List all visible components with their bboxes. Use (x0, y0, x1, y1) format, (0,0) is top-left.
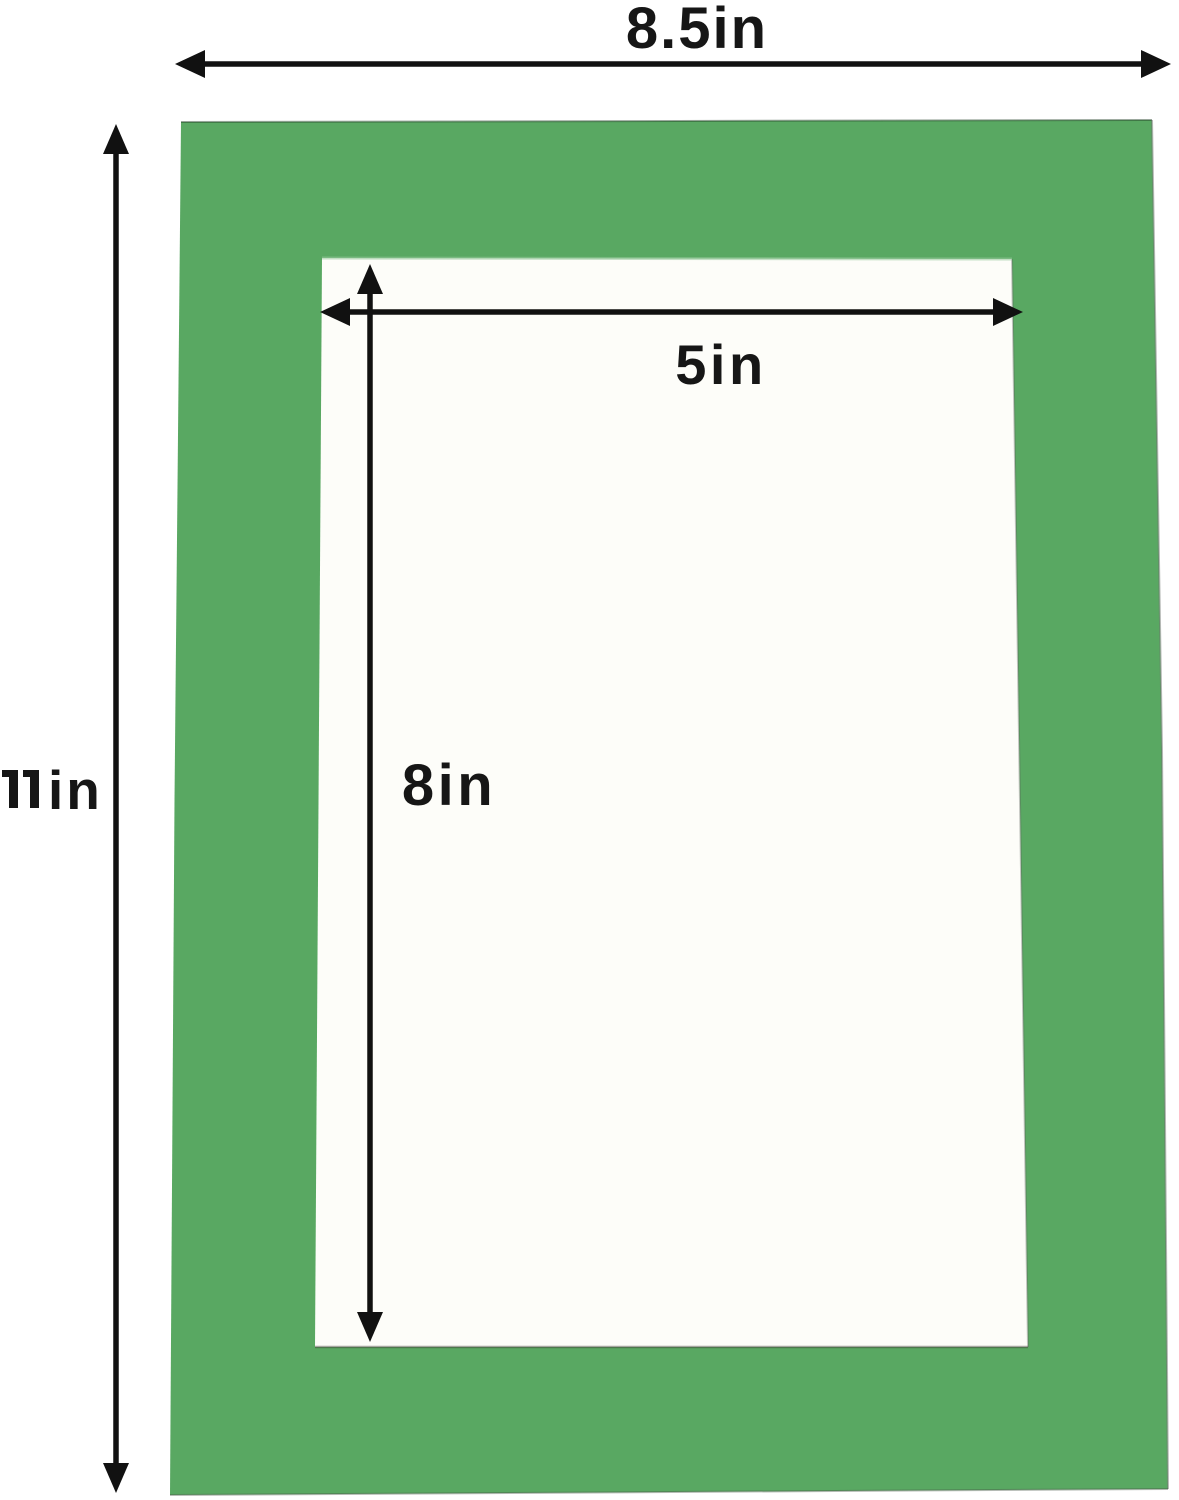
svg-text:8.5in: 8.5in (626, 0, 768, 61)
svg-text:5in: 5in (675, 333, 766, 396)
svg-text:in: in (48, 759, 103, 821)
svg-text:8in: 8in (402, 753, 496, 818)
